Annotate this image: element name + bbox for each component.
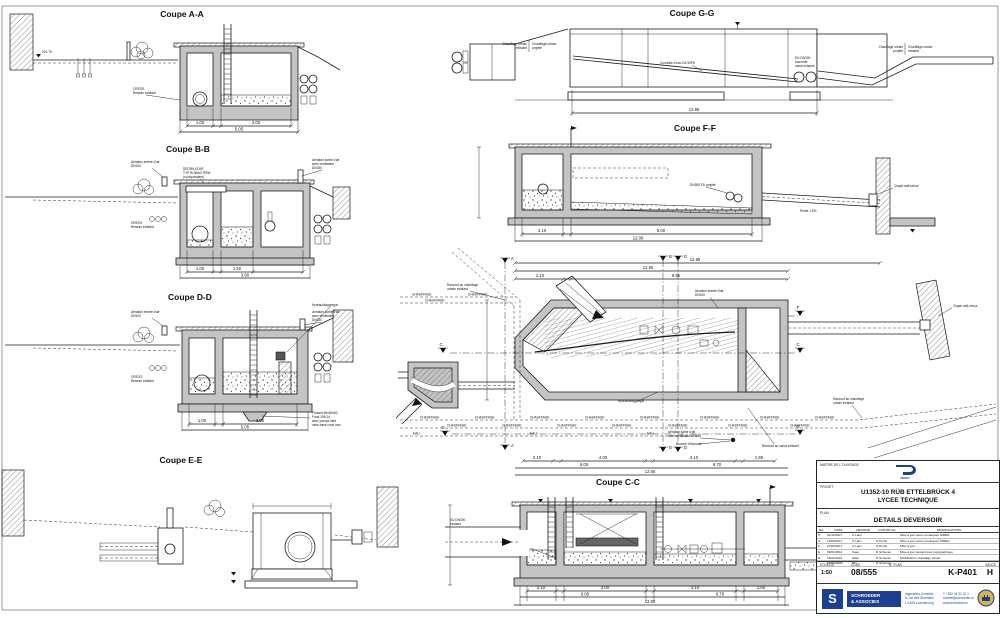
svg-text:DN100: DN100 bbox=[131, 164, 141, 168]
svg-text:CHAUFFAGE: CHAUFFAGE bbox=[412, 293, 431, 297]
svg-text:5.05: 5.05 bbox=[241, 425, 250, 430]
tank bbox=[245, 513, 357, 588]
echelle-label: ECHELLE bbox=[820, 563, 835, 567]
section-coupe-ff: Coupe F-F DN350 FD projeté Pente 1.5% Cl… bbox=[477, 123, 935, 242]
plan-title: DETAILS DEVERSOIR bbox=[817, 517, 999, 524]
svg-text:existant: existant bbox=[516, 46, 527, 50]
hydraulik-label: Hydraulikaggregat bbox=[618, 399, 644, 403]
svg-text:CHAUFFAGE: CHAUFFAGE bbox=[760, 416, 779, 420]
svg-text:CHAUFFAGE: CHAUFFAGE bbox=[530, 416, 549, 420]
svg-text:9.55: 9.55 bbox=[672, 273, 681, 278]
svg-text:D: D bbox=[684, 445, 687, 450]
section-coupe-cc: Coupe C-C bbox=[445, 477, 832, 606]
svg-text:CHAUFFAGE: CHAUFFAGE bbox=[815, 416, 834, 420]
svg-text:CHAUFFAGE: CHAUFFAGE bbox=[668, 424, 687, 428]
dn350-label: DN350 FD projeté bbox=[690, 183, 716, 187]
svg-text:CHAUFFAGE: CHAUFFAGE bbox=[425, 299, 444, 303]
svg-text:canal existant: canal existant bbox=[795, 64, 815, 68]
svg-text:DN150: DN150 bbox=[312, 166, 322, 170]
svg-text:existant: existant bbox=[908, 49, 919, 53]
nplan-label: N° PLAN bbox=[889, 563, 902, 567]
utility-ducts bbox=[300, 75, 317, 104]
revision-table: NO. DATE DESSINE CONTROLE MODIFICATIONS … bbox=[817, 528, 999, 567]
svg-text:DN100: DN100 bbox=[131, 314, 141, 318]
raccord-canal-label: Raccord au canal existant bbox=[762, 444, 799, 448]
echelle-value: 1:50 bbox=[821, 570, 832, 576]
svg-text:1.00: 1.00 bbox=[196, 266, 205, 271]
svg-text:2.10: 2.10 bbox=[536, 273, 545, 278]
svg-text:A: A bbox=[511, 256, 514, 261]
svg-text:DN150: DN150 bbox=[312, 318, 322, 322]
tree-symbol bbox=[133, 179, 154, 195]
coupe-gg-title: Coupe G-G bbox=[670, 8, 715, 18]
coupe-dd-title: Coupe D-D bbox=[168, 292, 212, 302]
svg-text:avec ventilateur DN150: avec ventilateur DN150 bbox=[668, 434, 701, 438]
svg-text:1.90: 1.90 bbox=[755, 455, 764, 460]
svg-text:B: B bbox=[669, 445, 672, 450]
utility-ducts bbox=[314, 215, 331, 244]
title-block-owner-row: MAÎTRE DE L'OUVRAGE SIDEN bbox=[817, 461, 999, 483]
svg-text:urbain existant: urbain existant bbox=[447, 287, 468, 291]
project-title-line1: U1352-10 RÜB ETTELBRÜCK 4 bbox=[817, 489, 999, 497]
coupe-cc-title: Coupe C-C bbox=[596, 477, 640, 487]
svg-text:A: A bbox=[511, 443, 514, 448]
svg-text:2.10: 2.10 bbox=[537, 585, 546, 590]
firm-contact: T +352 44 31 31 1 conseil@schroeder.lu w… bbox=[943, 592, 974, 605]
section-coupe-bb: Coupe B-B Aération entrée d'air DN100 DE… bbox=[5, 144, 350, 279]
svg-text:projeté: projeté bbox=[893, 49, 903, 53]
title-block-plan-row: PLAN DETAILS DEVERSOIR bbox=[817, 509, 999, 527]
svg-text:D: D bbox=[684, 254, 687, 259]
plan-view: Clapet anti-retour CHAUFFAGE CHAUFFAGE C… bbox=[396, 248, 996, 475]
svg-text:1.00: 1.00 bbox=[196, 120, 205, 125]
plan-label: PLAN bbox=[820, 511, 829, 515]
svg-text:5.05: 5.05 bbox=[235, 127, 244, 132]
svg-text:Réseau existant: Réseau existant bbox=[133, 91, 156, 95]
svg-text:CHAUFFAGE: CHAUFFAGE bbox=[585, 416, 604, 420]
coupe-bb-title: Coupe B-B bbox=[166, 144, 210, 154]
svg-text:12.86: 12.86 bbox=[690, 257, 701, 262]
svg-text:DN100: DN100 bbox=[695, 293, 705, 297]
svg-text:CHAUFFAGE: CHAUFFAGE bbox=[728, 424, 747, 428]
section-coupe-ee: Coupe E-E bbox=[2, 455, 398, 588]
svg-text:B: B bbox=[669, 254, 672, 259]
coupe-ff-title: Coupe F-F bbox=[674, 123, 716, 133]
section-coupe-dd: Coupe D-D Aération entrée d'air DN100 CR… bbox=[5, 292, 353, 431]
svg-text:12.86: 12.86 bbox=[689, 107, 700, 112]
project-title-line2: LYCEE TECHNIQUE bbox=[817, 497, 999, 505]
svg-text:3.00: 3.00 bbox=[256, 418, 265, 423]
svg-text:cave dans cuve inox: cave dans cuve inox bbox=[312, 423, 341, 427]
svg-text:6.05: 6.05 bbox=[580, 462, 589, 467]
crest-icon bbox=[977, 589, 995, 608]
svg-text:EAU: EAU bbox=[530, 432, 537, 436]
title-block-project-row: PROJET U1352-10 RÜB ETTELBRÜCK 4 LYCEE T… bbox=[817, 483, 999, 509]
svg-text:CHAUFFAGE: CHAUFFAGE bbox=[447, 424, 466, 428]
svg-text:6.70: 6.70 bbox=[713, 462, 722, 467]
pente-label: Pente 1.5% bbox=[800, 209, 817, 213]
svg-text:12.50: 12.50 bbox=[643, 265, 654, 270]
svg-text:C: C bbox=[439, 342, 442, 347]
svg-text:3.60: 3.60 bbox=[241, 273, 250, 278]
siden-logo-icon: SIDEN bbox=[888, 464, 922, 480]
svg-text:CHAUFFAGE: CHAUFFAGE bbox=[420, 416, 439, 420]
svg-text:Réseau existant: Réseau existant bbox=[131, 379, 154, 383]
title-block-firm-row: S SCHROEDER & ASSOCIES Ingénieurs-Consei… bbox=[817, 584, 999, 613]
svg-text:1.00: 1.00 bbox=[198, 418, 207, 423]
clapet-label: Clapet anti-retour bbox=[953, 304, 979, 308]
schroeder-name-box: SCHROEDER & ASSOCIES bbox=[847, 591, 901, 607]
svg-text:2.10: 2.10 bbox=[538, 228, 547, 233]
svg-text:1.50: 1.50 bbox=[233, 266, 242, 271]
svg-text:12.50: 12.50 bbox=[645, 469, 656, 474]
coupe-ee-title: Coupe E-E bbox=[160, 455, 203, 465]
tree-symbol bbox=[133, 327, 154, 343]
projet-label: PROJET bbox=[820, 485, 833, 489]
svg-text:CHAUFFAGE: CHAUFFAGE bbox=[700, 416, 719, 420]
svg-text:12.50: 12.50 bbox=[645, 599, 656, 604]
svg-text:CHAUFFAGE: CHAUFFAGE bbox=[640, 416, 659, 420]
svg-text:F: F bbox=[797, 305, 800, 310]
svg-text:6.05: 6.05 bbox=[581, 592, 590, 597]
svg-text:CHAUFFAGE: CHAUFFAGE bbox=[790, 424, 809, 428]
svg-text:1.60: 1.60 bbox=[757, 585, 766, 590]
drawing-sheet: Coupe A-A 201.75 CREOS Réseau existant bbox=[0, 0, 1000, 618]
code-value: 08/555 bbox=[851, 567, 877, 577]
conduite-label: Conduite d'eau DA 90PE bbox=[660, 61, 695, 65]
title-block-revisions: NO. DATE DESSINE CONTROLE MODIFICATIONS … bbox=[817, 527, 999, 562]
svg-text:CHAUFFAGE: CHAUFFAGE bbox=[612, 424, 631, 428]
svg-text:EAU: EAU bbox=[647, 432, 654, 436]
rev-header-controle: CONTROLE bbox=[875, 528, 899, 533]
svg-text:9.00: 9.00 bbox=[657, 228, 666, 233]
svg-text:3.00: 3.00 bbox=[252, 120, 261, 125]
svg-text:G: G bbox=[441, 425, 444, 430]
maitre-ouvrage-label: MAÎTRE DE L'OUVRAGE bbox=[820, 463, 859, 467]
svg-text:projeté: projeté bbox=[532, 46, 542, 50]
title-block-scale-row: ECHELLE CODE N° PLAN INDICE 1:50 08/555 … bbox=[817, 562, 999, 584]
dimension-lines: 2.10 4.00 3.10 1.60 6.05 6.70 12.50 bbox=[514, 585, 789, 606]
title-block: MAÎTRE DE L'OUVRAGE SIDEN PROJET U1352-1… bbox=[816, 460, 1000, 614]
svg-text:3.10: 3.10 bbox=[691, 585, 700, 590]
svg-text:12.00: 12.00 bbox=[633, 236, 644, 241]
clapet-label: Clapet anti-retour bbox=[894, 184, 920, 188]
nplan-value: K-P401 bbox=[948, 567, 977, 577]
coupe-aa-title: Coupe A-A bbox=[160, 9, 204, 19]
svg-text:CHAUFFAGE: CHAUFFAGE bbox=[557, 424, 576, 428]
tree-symbol bbox=[204, 500, 225, 517]
svg-text:Réseau existant: Réseau existant bbox=[131, 225, 154, 229]
svg-text:urbain existant: urbain existant bbox=[833, 401, 854, 405]
firm-address: Ingénieurs-Conseils 8, rue des Girondins… bbox=[905, 592, 934, 605]
indice-value: H bbox=[987, 567, 993, 577]
elevation-label: 201.75 bbox=[42, 50, 52, 54]
bouche-incendie-label: Bouche d'incendie bbox=[676, 442, 702, 446]
svg-text:existant: existant bbox=[450, 522, 461, 526]
section-coupe-gg: Coupe G-G Conduite d'eau DA 90PE Chauffa… bbox=[452, 8, 993, 116]
tree-symbol bbox=[131, 42, 153, 59]
svg-text:2.10: 2.10 bbox=[533, 455, 542, 460]
svg-text:G: G bbox=[796, 424, 799, 429]
svg-text:C: C bbox=[796, 342, 799, 347]
svg-text:EAU: EAU bbox=[413, 432, 420, 436]
svg-text:CHAUFFAGE: CHAUFFAGE bbox=[475, 416, 494, 420]
svg-text:6.70: 6.70 bbox=[716, 592, 725, 597]
utility-ducts bbox=[314, 353, 331, 382]
schroeder-s-logo-icon: S bbox=[822, 589, 843, 609]
buried-pipes bbox=[100, 543, 158, 561]
manhole bbox=[158, 508, 183, 564]
svg-text:4.00: 4.00 bbox=[601, 585, 610, 590]
svg-text:4.00: 4.00 bbox=[599, 455, 608, 460]
section-coupe-aa: Coupe A-A 201.75 CREOS Réseau existant bbox=[10, 9, 340, 134]
svg-text:3.10: 3.10 bbox=[690, 455, 699, 460]
svg-text:(ou équivalent): (ou équivalent) bbox=[183, 175, 204, 179]
hydraulik-label: Hydraulikaggregat bbox=[312, 303, 338, 307]
